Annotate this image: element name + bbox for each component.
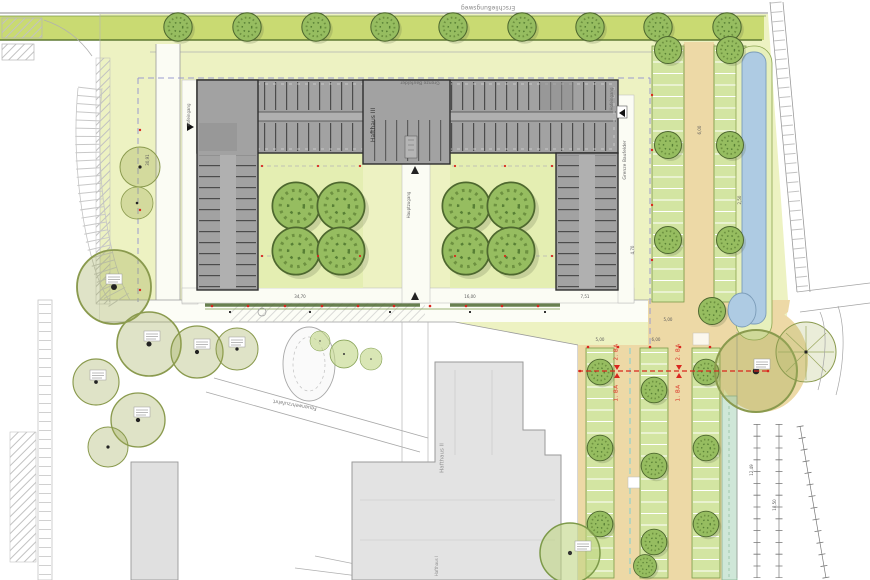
dim-text: 6,00: [698, 126, 702, 135]
dim-text: 2,50: [738, 196, 742, 205]
phase-2-label-right: 2. BA: [676, 343, 682, 360]
hofeingang-right-label: Hofeingang: [610, 87, 614, 110]
hauptzugang-label: Hauptzugang: [407, 192, 411, 219]
phase-1-label-right: 1. BA: [676, 384, 682, 401]
phase-2-label-left: 2. BA: [614, 343, 620, 360]
hafthaus-1-label: Hafthaus I: [435, 556, 439, 576]
hafthaus-2-label: Hafthaus II: [440, 443, 446, 473]
site-plan: Erschließungsweg Grenze Baufelder Grenze…: [0, 0, 870, 580]
dim-text: 7,51: [581, 295, 590, 299]
street-name-label: Erschließungsweg: [461, 4, 515, 10]
dim-text: 12,49: [750, 464, 754, 475]
dim-text: 30,91: [146, 154, 150, 165]
hofeingang-left-label: Hofeingang: [187, 103, 191, 126]
dim-text: 34,70: [294, 295, 305, 299]
dim-text: 4,70: [631, 246, 635, 255]
central-entrance-path: [402, 162, 430, 303]
dim-text: 6,00: [652, 338, 661, 342]
plot-boundary-label-top: Grenze Baufelder: [400, 79, 439, 84]
site-plan-svg: [0, 0, 870, 580]
phase-1-label-left: 1. BA: [614, 384, 620, 401]
dim-text: 5,00: [664, 318, 673, 322]
hafthaus-3-label: Hafthaus III: [371, 108, 377, 142]
dim-text: 5,00: [596, 338, 605, 342]
dim-text: 16,00: [464, 295, 475, 299]
plot-boundary-label-right: Grenze Baufelder: [624, 140, 629, 179]
existing-building: [131, 462, 178, 580]
street-trees: [164, 13, 744, 44]
dim-text: 18,50: [773, 499, 777, 510]
